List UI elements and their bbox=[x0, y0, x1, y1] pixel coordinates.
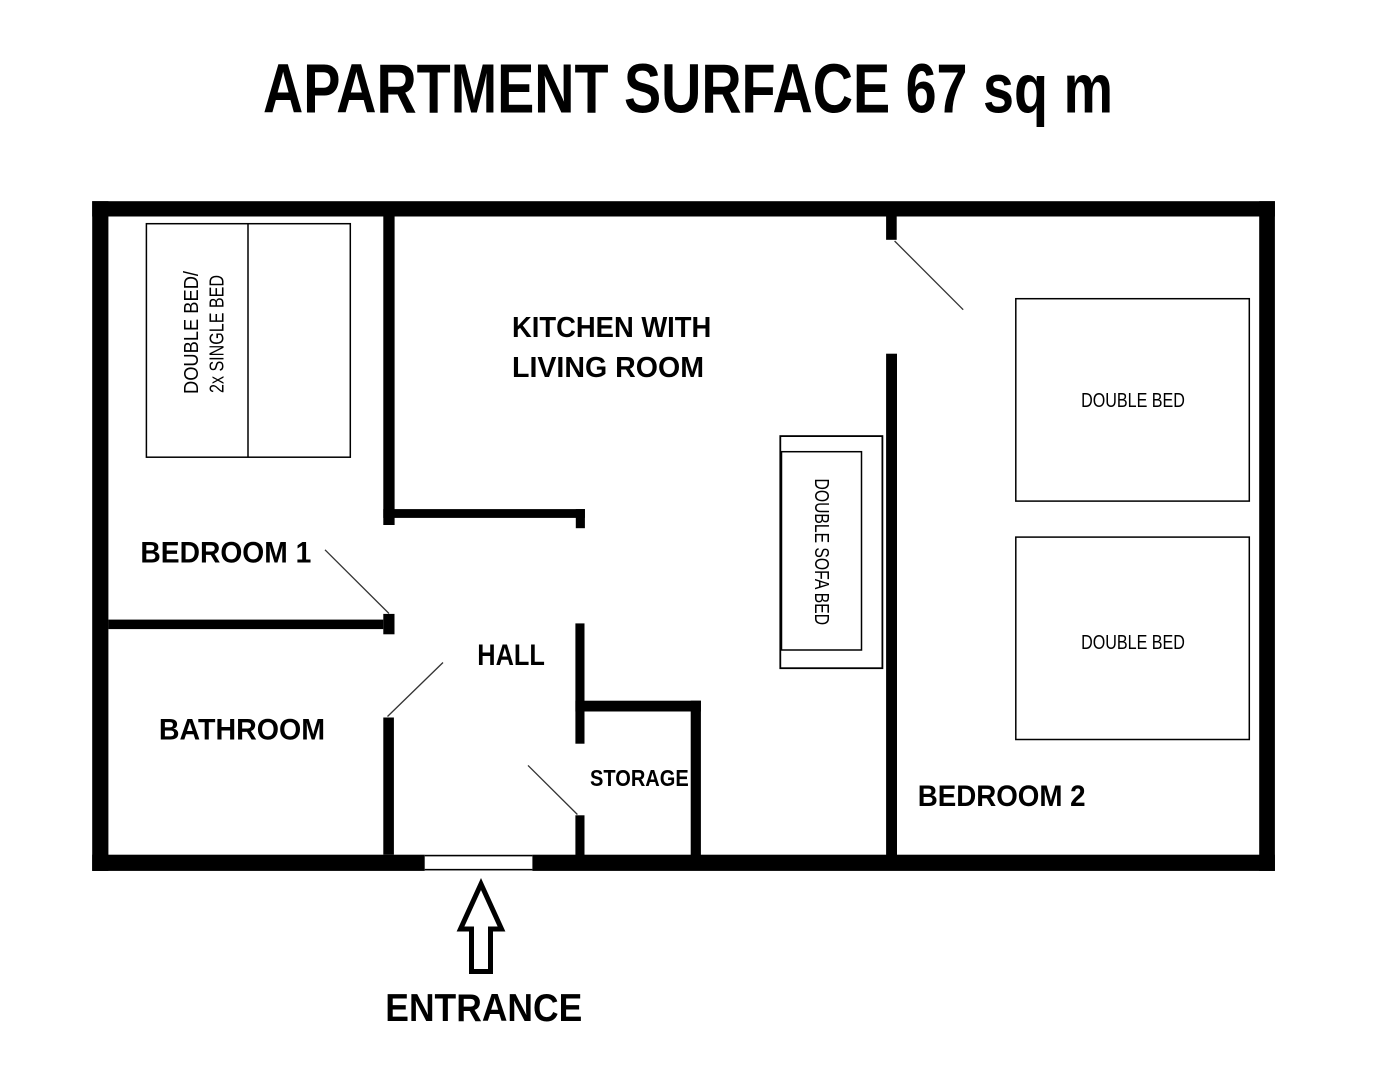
svg-text:BEDROOM 1: BEDROOM 1 bbox=[140, 537, 311, 570]
svg-text:BATHROOM: BATHROOM bbox=[159, 714, 325, 747]
svg-text:DOUBLE BED: DOUBLE BED bbox=[1081, 389, 1185, 412]
svg-text:DOUBLE BED/: DOUBLE BED/ bbox=[180, 271, 203, 394]
svg-text:DOUBLE SOFA BED: DOUBLE SOFA BED bbox=[810, 479, 833, 626]
svg-text:HALL: HALL bbox=[477, 639, 545, 672]
svg-text:LIVING ROOM: LIVING ROOM bbox=[512, 352, 704, 384]
svg-text:APARTMENT SURFACE 67 sq m: APARTMENT SURFACE 67 sq m bbox=[263, 50, 1113, 128]
svg-text:KITCHEN WITH: KITCHEN WITH bbox=[512, 312, 711, 344]
svg-text:DOUBLE BED: DOUBLE BED bbox=[1081, 631, 1185, 654]
svg-text:2x SINGLE BED: 2x SINGLE BED bbox=[206, 275, 229, 393]
svg-text:BEDROOM 2: BEDROOM 2 bbox=[918, 780, 1086, 813]
svg-text:ENTRANCE: ENTRANCE bbox=[385, 987, 582, 1030]
svg-text:STORAGE: STORAGE bbox=[590, 765, 689, 791]
